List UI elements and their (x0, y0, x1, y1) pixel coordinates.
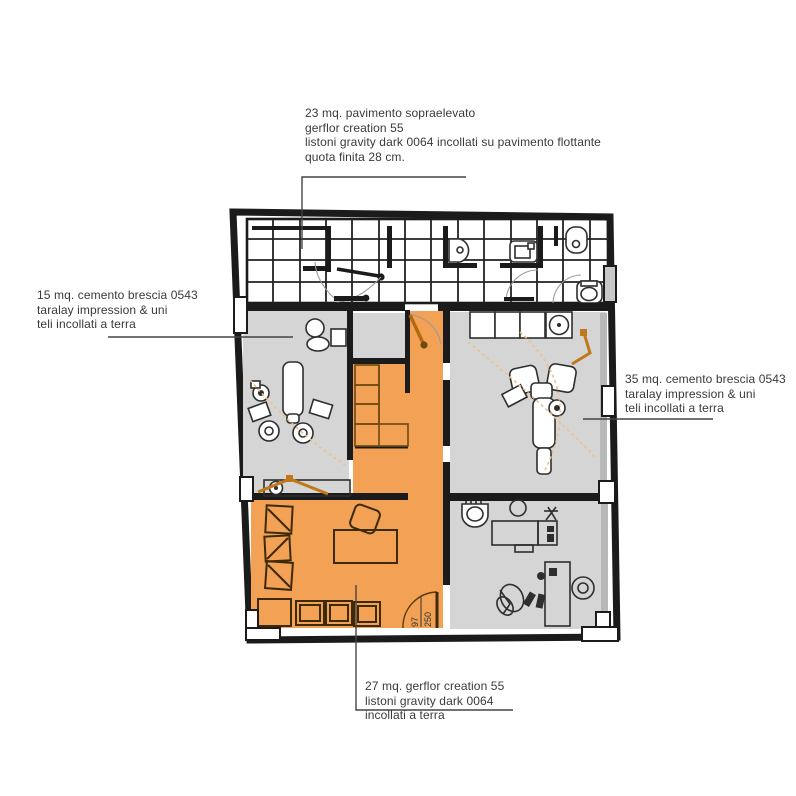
annotation-raised-floor: 23 mq. pavimento sopraelevato gerflor cr… (305, 106, 601, 164)
floor-plan-page: 97 250 23 mq. pavimento sopraeleva (0, 0, 796, 796)
annotation-line: 23 mq. pavimento sopraelevato (305, 106, 601, 121)
wall-shadow (601, 503, 608, 627)
door-leaf (334, 296, 364, 301)
annotation-line: listoni gravity dark 0064 incollati su p… (305, 135, 601, 150)
sink-icon (449, 239, 469, 262)
floor-fills (243, 310, 608, 629)
door-leaf (504, 297, 534, 301)
chair-icon (306, 319, 324, 337)
svg-text:250: 250 (423, 612, 433, 627)
annotation-line: 15 mq. cemento brescia 0543 (37, 288, 198, 303)
annotation-line: incollati a terra (365, 708, 504, 723)
room-right-floor (450, 312, 606, 494)
annotation-line: listoni gravity dark 0064 (365, 694, 504, 709)
annotation-room-left: 15 mq. cemento brescia 0543 taralay impr… (37, 288, 198, 332)
annotation-line: quota finita 28 cm. (305, 150, 601, 165)
stool-icon (259, 421, 279, 441)
annotation-line: taralay impression & uni (37, 303, 198, 318)
annotation-line: teli incollati a terra (37, 317, 198, 332)
annotation-line: gerflor creation 55 (305, 121, 601, 136)
annotation-room-right: 35 mq. cemento brescia 0543 taralay impr… (625, 372, 786, 416)
dental-chair-icon (283, 362, 303, 416)
closet-floor (353, 313, 407, 361)
svg-text:97: 97 (410, 617, 420, 627)
annotation-line: 27 mq. gerflor creation 55 (365, 679, 504, 694)
annotation-line: teli incollati a terra (625, 401, 786, 416)
counter-icon (470, 312, 495, 338)
annotation-line: 35 mq. cemento brescia 0543 (625, 372, 786, 387)
annotation-room-bottom: 27 mq. gerflor creation 55 listoni gravi… (365, 679, 504, 723)
annotation-line: taralay impression & uni (625, 387, 786, 402)
